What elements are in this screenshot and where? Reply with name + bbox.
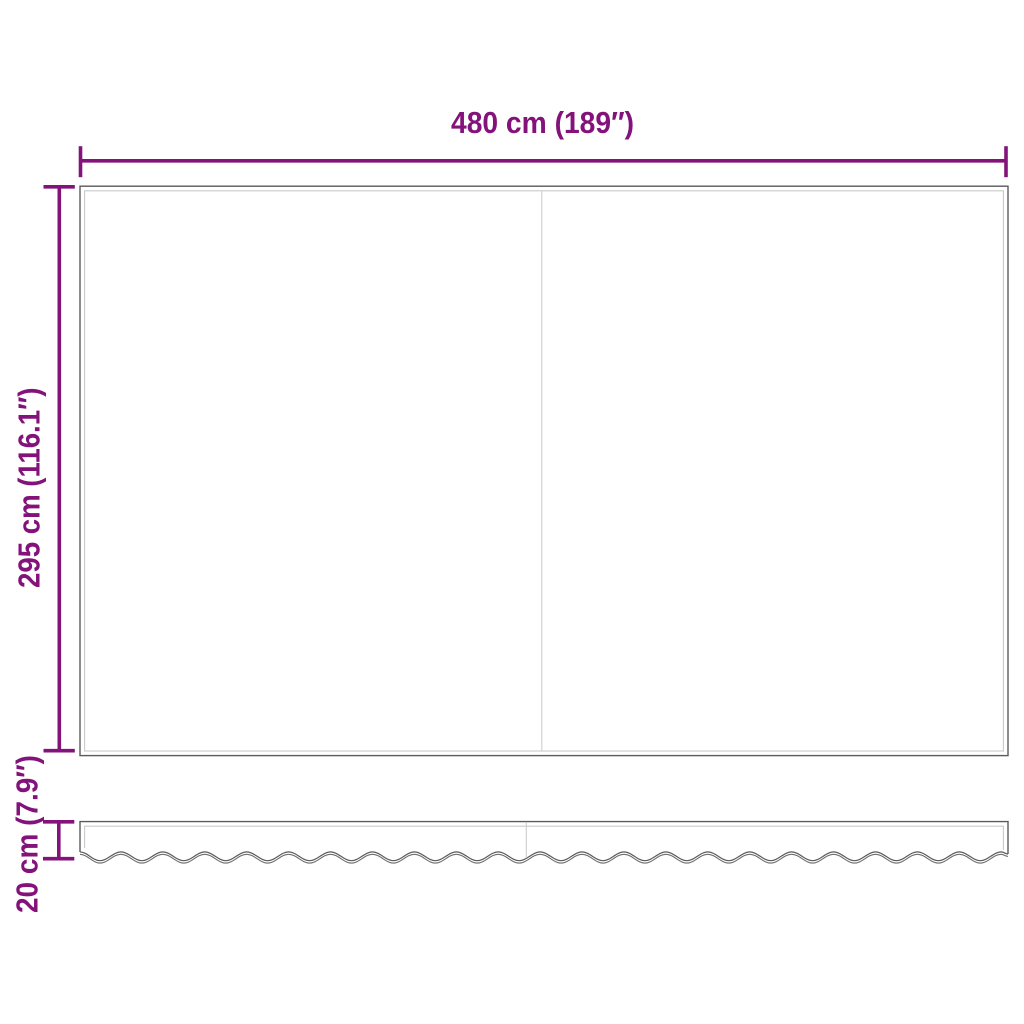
svg-text:295 cm (116.1″): 295 cm (116.1″) xyxy=(12,388,47,589)
svg-text:20 cm (7.9″): 20 cm (7.9″) xyxy=(10,755,45,913)
svg-text:480 cm (189″): 480 cm (189″) xyxy=(451,105,634,140)
